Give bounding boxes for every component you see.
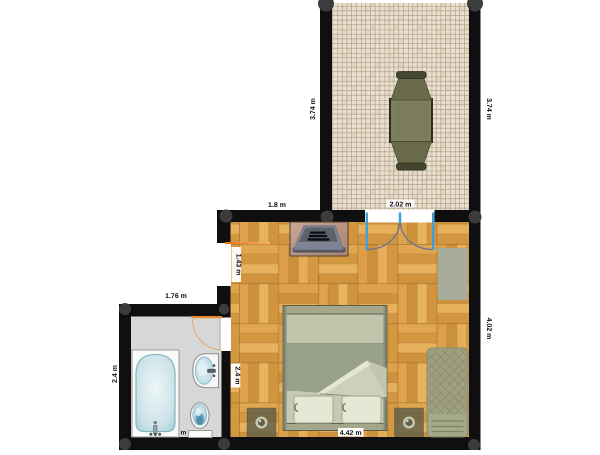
svg-text:3.74 m: 3.74 m [485,98,492,120]
svg-text:1.76 m: 1.76 m [165,293,187,300]
svg-text:4.42 m: 4.42 m [340,430,362,437]
svg-text:2.02 m: 2.02 m [390,202,412,209]
svg-text:2.4 m: 2.4 m [112,365,119,383]
svg-text:1.8 m: 1.8 m [268,202,286,209]
svg-text:4.02 m: 4.02 m [485,318,492,340]
svg-text:3.74 m: 3.74 m [310,98,317,120]
svg-text:1.43 m: 1.43 m [234,254,241,276]
svg-text:m: m [181,430,187,437]
svg-text:2.4 m: 2.4 m [234,367,241,385]
